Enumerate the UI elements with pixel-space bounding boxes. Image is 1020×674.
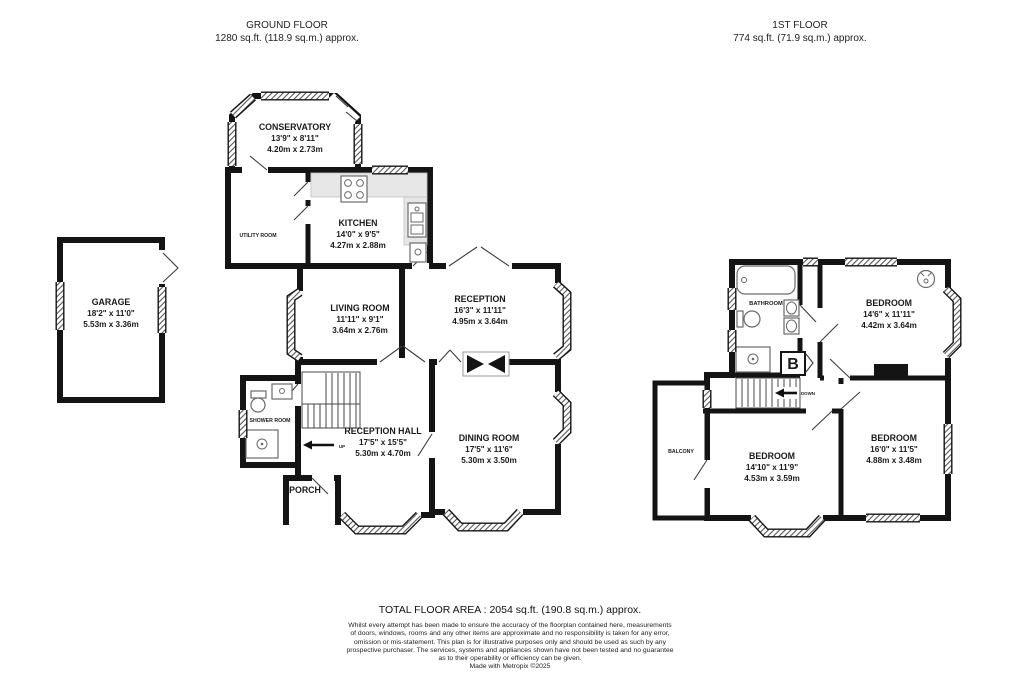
bedroom2-dim-m: 4.53m x 3.59m: [744, 474, 800, 483]
conservatory-dim-ft: 13'9" x 8'11": [271, 134, 319, 143]
bathtub-icon: [737, 266, 795, 294]
bedroom3-dim-m: 4.88m x 3.48m: [866, 456, 922, 465]
down-label: DOWN: [801, 391, 815, 396]
bedroom1-dim-m: 4.42m x 3.64m: [861, 321, 917, 330]
balcony-label: BALCONY: [668, 449, 694, 455]
up-label: UP: [339, 444, 345, 449]
bathroom-label: BATHROOM: [749, 301, 783, 307]
reception-dim-ft: 16'3" x 11'11": [454, 306, 506, 315]
porch-label: PORCH: [289, 485, 321, 495]
floorplan-drawing: GARAGE 18'2" x 11'0" 5.53m x 3.36m CONSE…: [0, 0, 1020, 674]
conservatory-label: CONSERVATORY: [259, 122, 331, 132]
dining-dim-m: 5.30m x 3.50m: [461, 456, 517, 465]
ground-floor-plan: GARAGE 18'2" x 11'0" 5.53m x 3.36m CONSE…: [60, 93, 567, 530]
living-label: LIVING ROOM: [330, 303, 389, 313]
utility-label: UTILITY ROOM: [239, 233, 276, 239]
dining-dim-ft: 17'5" x 11'6": [465, 445, 513, 454]
living-dim-ft: 11'11" x 9'1": [336, 315, 383, 324]
disclaimer-line: prospective purchaser. The services, sys…: [240, 647, 780, 655]
floorplan-page: GROUND FLOOR 1280 sq.ft. (118.9 sq.m.) a…: [0, 0, 1020, 674]
conservatory-dim-m: 4.20m x 2.73m: [267, 145, 323, 154]
fireplace-icon: [463, 352, 509, 376]
dining-label: DINING ROOM: [459, 433, 520, 443]
bedroom-sink-icon: [918, 271, 935, 288]
kitchen-appliance-icon: [410, 243, 426, 262]
hall-label: RECEPTION HALL: [344, 426, 422, 436]
toilet-icon: [251, 391, 266, 412]
bedroom1-label: BEDROOM: [866, 298, 912, 308]
hall-dim-ft: 17'5" x 15'5": [359, 438, 407, 447]
shower-tray-icon: [246, 430, 278, 458]
kitchen-dim-ft: 14'0" x 9'5": [336, 230, 380, 239]
hall-dim-m: 5.30m x 4.70m: [355, 449, 411, 458]
disclaimer-line: Whilst every attempt has been made to en…: [240, 622, 780, 630]
bedroom2-dim-ft: 14'10" x 11'9": [746, 463, 798, 472]
credit-line: Made with Metropix ©2025: [240, 663, 780, 671]
kitchen-label: KITCHEN: [338, 218, 377, 228]
garage-dim-ft: 18'2" x 11'0": [87, 309, 135, 318]
reception-dim-m: 4.95m x 3.64m: [452, 317, 508, 326]
chimney-breast: [874, 364, 908, 378]
bedroom1-dim-ft: 14'6" x 11'11": [863, 310, 915, 319]
bathroom-toilet-icon: [737, 311, 760, 327]
bathroom-shower-icon: [736, 347, 770, 372]
kitchen-dim-m: 4.27m x 2.88m: [330, 241, 386, 250]
disclaimer-line: of doors, windows, rooms and any other i…: [240, 630, 780, 638]
bedroom2-label: BEDROOM: [749, 451, 795, 461]
living-dim-m: 3.64m x 2.76m: [332, 326, 388, 335]
stove-icon: [341, 176, 367, 202]
reception-label: RECEPTION: [454, 294, 505, 304]
kitchen-sink-icon: [408, 203, 426, 237]
stairs-up: [302, 372, 360, 428]
first-floor-plan: BATHROOM BEDROOM 14'6" x 11'11" 4.42m x …: [655, 262, 957, 533]
bedroom3-label: BEDROOM: [871, 433, 917, 443]
disclaimer: Whilst every attempt has been made to en…: [240, 622, 780, 672]
shower-label: SHOWER ROOM: [250, 418, 291, 424]
garage-dim-m: 5.53m x 3.36m: [83, 320, 139, 329]
garage-label: GARAGE: [92, 297, 131, 307]
shower-sink-icon: [272, 384, 292, 399]
bedroom3-dim-ft: 16'0" x 11'5": [870, 445, 918, 454]
boiler-label: B: [787, 356, 799, 373]
room-living: [300, 266, 402, 362]
disclaimer-line: omission or mis-statement. This plan is …: [240, 639, 780, 647]
total-floor-area: TOTAL FLOOR AREA : 2054 sq.ft. (190.8 sq…: [210, 604, 810, 616]
